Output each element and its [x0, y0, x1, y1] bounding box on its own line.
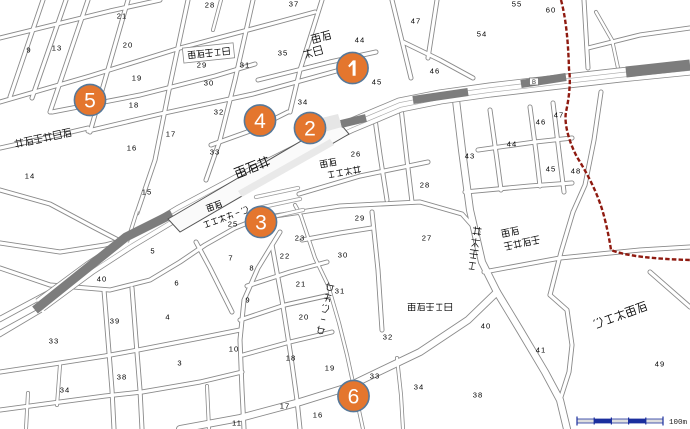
svg-text:16: 16 [313, 411, 323, 420]
svg-text:34: 34 [60, 386, 70, 395]
svg-text:25: 25 [228, 220, 238, 229]
svg-text:3: 3 [177, 359, 182, 368]
svg-text:15: 15 [142, 188, 152, 197]
svg-text:49: 49 [655, 360, 665, 369]
svg-text:21: 21 [296, 280, 306, 289]
svg-text:17: 17 [280, 402, 290, 411]
svg-text:46: 46 [536, 118, 546, 127]
svg-text:23: 23 [295, 234, 305, 243]
svg-text:29: 29 [355, 214, 365, 223]
svg-text:30: 30 [204, 79, 214, 88]
svg-text:54: 54 [477, 30, 487, 39]
svg-text:45: 45 [372, 78, 382, 87]
svg-text:19: 19 [132, 74, 142, 83]
svg-text:48: 48 [571, 167, 581, 176]
svg-text:13: 13 [52, 44, 62, 53]
svg-text:28: 28 [420, 181, 430, 190]
svg-text:34: 34 [414, 383, 424, 392]
svg-text:20: 20 [299, 313, 309, 322]
svg-text:16: 16 [127, 144, 137, 153]
svg-text:55: 55 [512, 0, 522, 9]
svg-text:32: 32 [214, 108, 224, 117]
svg-text:6: 6 [174, 279, 179, 288]
svg-text:31: 31 [335, 287, 345, 296]
svg-text:33: 33 [210, 148, 220, 157]
svg-text:30: 30 [338, 251, 348, 260]
svg-text:17: 17 [166, 130, 176, 139]
svg-text:31: 31 [240, 61, 250, 70]
svg-text:28: 28 [205, 1, 215, 10]
svg-text:4: 4 [254, 110, 266, 133]
svg-text:2: 2 [304, 118, 316, 141]
svg-text:41: 41 [536, 346, 546, 355]
svg-text:8: 8 [249, 264, 254, 273]
svg-text:5: 5 [84, 90, 96, 113]
svg-text:33: 33 [370, 372, 380, 381]
svg-text:33: 33 [49, 337, 59, 346]
svg-text:44: 44 [507, 140, 517, 149]
svg-text:46: 46 [430, 67, 440, 76]
svg-text:B: B [532, 80, 536, 86]
svg-text:47: 47 [411, 17, 421, 26]
svg-text:38: 38 [117, 373, 127, 382]
svg-text:32: 32 [383, 333, 393, 342]
svg-text:18: 18 [286, 354, 296, 363]
svg-text:47: 47 [554, 111, 564, 120]
svg-text:20: 20 [123, 41, 133, 50]
svg-text:22: 22 [280, 252, 290, 261]
svg-text:100m: 100m [669, 419, 688, 427]
svg-text:9: 9 [245, 296, 250, 305]
svg-text:45: 45 [546, 165, 556, 174]
svg-text:39: 39 [110, 317, 120, 326]
svg-text:14: 14 [25, 172, 35, 181]
svg-text:27: 27 [422, 234, 432, 243]
svg-text:9: 9 [26, 46, 31, 55]
svg-text:4: 4 [165, 313, 170, 322]
svg-text:7: 7 [228, 254, 233, 263]
svg-text:11: 11 [232, 419, 242, 428]
svg-text:26: 26 [351, 150, 361, 159]
svg-text:43: 43 [465, 152, 475, 161]
svg-text:38: 38 [473, 391, 483, 400]
svg-text:40: 40 [481, 322, 491, 331]
svg-text:18: 18 [129, 101, 139, 110]
svg-text:10: 10 [229, 345, 239, 354]
svg-text:6: 6 [348, 386, 360, 409]
svg-text:21: 21 [117, 12, 127, 21]
svg-text:40: 40 [97, 275, 107, 284]
svg-text:34: 34 [298, 98, 308, 107]
svg-text:37: 37 [289, 0, 299, 9]
svg-text:44: 44 [355, 36, 365, 45]
svg-text:35: 35 [278, 49, 288, 58]
svg-text:3: 3 [255, 212, 267, 235]
svg-text:19: 19 [325, 364, 335, 373]
svg-text:60: 60 [546, 6, 556, 15]
svg-text:5: 5 [150, 247, 155, 256]
